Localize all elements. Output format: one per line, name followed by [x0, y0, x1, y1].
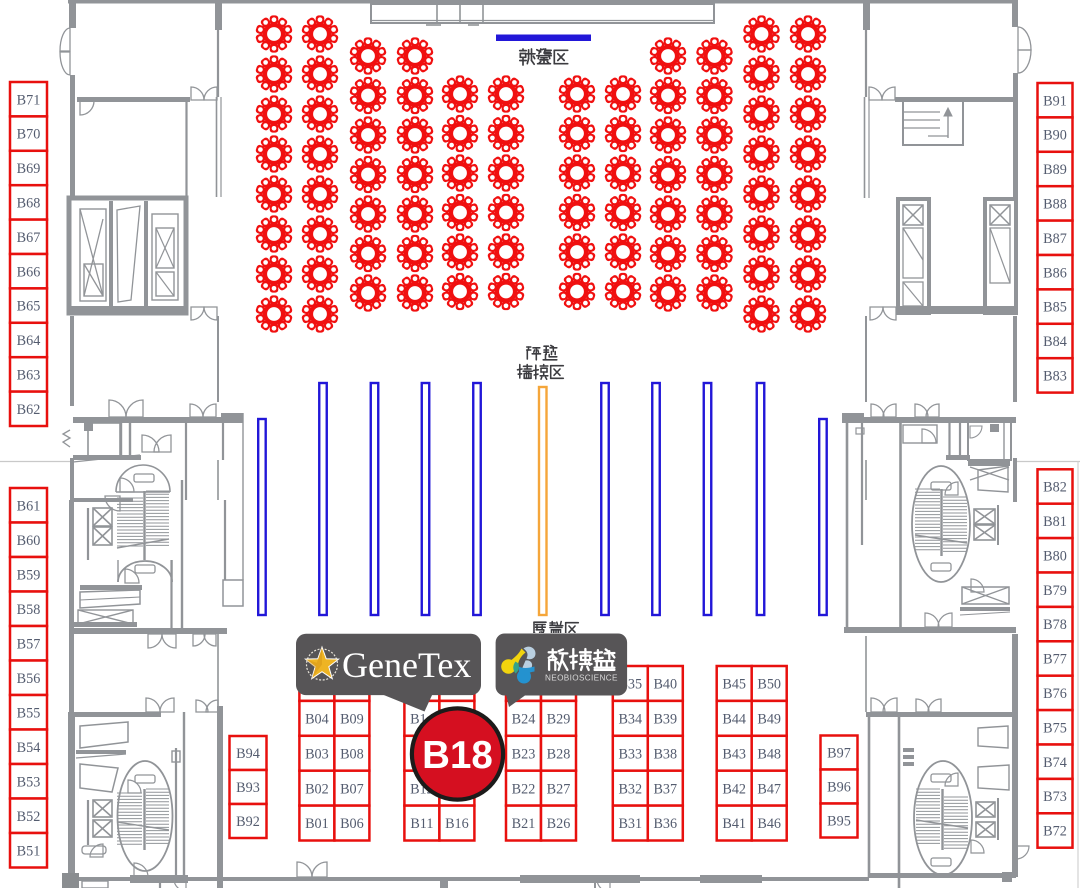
svg-text:B73: B73: [1043, 789, 1067, 805]
svg-text:B59: B59: [17, 567, 41, 583]
svg-text:B32: B32: [618, 781, 642, 797]
svg-text:B47: B47: [757, 781, 781, 797]
svg-text:B65: B65: [17, 299, 41, 315]
svg-text:B49: B49: [757, 712, 781, 728]
svg-text:B79: B79: [1043, 583, 1067, 599]
svg-text:B63: B63: [17, 368, 41, 384]
svg-text:B64: B64: [17, 333, 41, 349]
svg-text:B48: B48: [757, 746, 781, 762]
svg-text:B97: B97: [827, 746, 851, 762]
svg-text:B53: B53: [17, 774, 41, 790]
svg-text:B93: B93: [236, 780, 260, 796]
svg-text:B87: B87: [1043, 231, 1067, 247]
svg-text:B60: B60: [17, 533, 41, 549]
svg-text:B36: B36: [653, 816, 677, 832]
svg-text:B54: B54: [17, 740, 41, 756]
svg-text:B34: B34: [618, 712, 642, 728]
svg-text:NEOBIOSCIENCE: NEOBIOSCIENCE: [545, 674, 618, 683]
svg-text:B45: B45: [722, 677, 746, 693]
svg-text:B85: B85: [1043, 300, 1067, 316]
svg-text:B11: B11: [410, 816, 433, 832]
svg-text:B42: B42: [722, 781, 746, 797]
svg-text:B18: B18: [422, 734, 493, 777]
svg-text:B86: B86: [1043, 265, 1067, 281]
svg-text:B75: B75: [1043, 720, 1067, 736]
svg-text:B03: B03: [305, 746, 329, 762]
svg-text:B55: B55: [17, 705, 41, 721]
svg-text:B62: B62: [17, 402, 41, 418]
svg-text:B94: B94: [236, 746, 260, 762]
svg-text:B24: B24: [512, 712, 536, 728]
svg-text:B58: B58: [17, 602, 41, 618]
svg-text:B78: B78: [1043, 617, 1067, 633]
svg-text:B89: B89: [1043, 162, 1067, 178]
svg-text:B28: B28: [547, 746, 571, 762]
svg-text:B96: B96: [827, 780, 851, 796]
svg-text:B26: B26: [547, 816, 571, 832]
svg-text:B67: B67: [17, 230, 41, 246]
svg-text:B61: B61: [17, 498, 41, 514]
svg-text:B70: B70: [17, 127, 41, 143]
svg-text:B57: B57: [17, 636, 41, 652]
svg-text:B07: B07: [340, 781, 364, 797]
svg-text:B41: B41: [722, 816, 746, 832]
svg-text:B31: B31: [618, 816, 642, 832]
svg-text:B08: B08: [340, 746, 364, 762]
svg-text:GeneTex: GeneTex: [342, 645, 471, 685]
svg-text:B29: B29: [547, 712, 571, 728]
svg-text:B33: B33: [618, 746, 642, 762]
svg-text:B81: B81: [1043, 514, 1067, 530]
svg-text:B84: B84: [1043, 334, 1067, 350]
svg-text:B37: B37: [653, 781, 677, 797]
svg-text:B72: B72: [1043, 824, 1067, 840]
svg-text:B09: B09: [340, 712, 364, 728]
svg-text:B68: B68: [17, 196, 41, 212]
svg-text:B23: B23: [512, 746, 536, 762]
svg-text:B56: B56: [17, 671, 41, 687]
svg-text:B27: B27: [547, 781, 571, 797]
svg-text:B01: B01: [305, 816, 329, 832]
svg-text:B38: B38: [653, 746, 677, 762]
svg-text:B39: B39: [653, 712, 677, 728]
svg-text:B91: B91: [1043, 93, 1067, 109]
svg-text:B92: B92: [236, 814, 260, 830]
svg-text:B52: B52: [17, 809, 41, 825]
svg-text:B82: B82: [1043, 480, 1067, 496]
svg-text:B71: B71: [17, 92, 41, 108]
svg-text:B83: B83: [1043, 369, 1067, 385]
svg-text:B50: B50: [757, 677, 781, 693]
svg-text:B40: B40: [653, 677, 677, 693]
svg-text:B43: B43: [722, 746, 746, 762]
svg-text:B90: B90: [1043, 128, 1067, 144]
svg-text:B88: B88: [1043, 197, 1067, 213]
svg-text:B66: B66: [17, 264, 41, 280]
svg-text:B74: B74: [1043, 755, 1067, 771]
svg-text:B16: B16: [445, 816, 469, 832]
svg-text:B04: B04: [305, 712, 329, 728]
svg-text:B77: B77: [1043, 652, 1067, 668]
svg-text:B21: B21: [512, 816, 536, 832]
svg-text:B80: B80: [1043, 548, 1067, 564]
svg-text:B95: B95: [827, 814, 851, 830]
svg-text:B06: B06: [340, 816, 364, 832]
svg-text:B44: B44: [722, 712, 746, 728]
svg-text:B22: B22: [512, 781, 536, 797]
svg-text:B69: B69: [17, 161, 41, 177]
svg-text:B02: B02: [305, 781, 329, 797]
svg-text:B46: B46: [757, 816, 781, 832]
svg-text:B51: B51: [17, 843, 41, 859]
svg-text:B76: B76: [1043, 686, 1067, 702]
